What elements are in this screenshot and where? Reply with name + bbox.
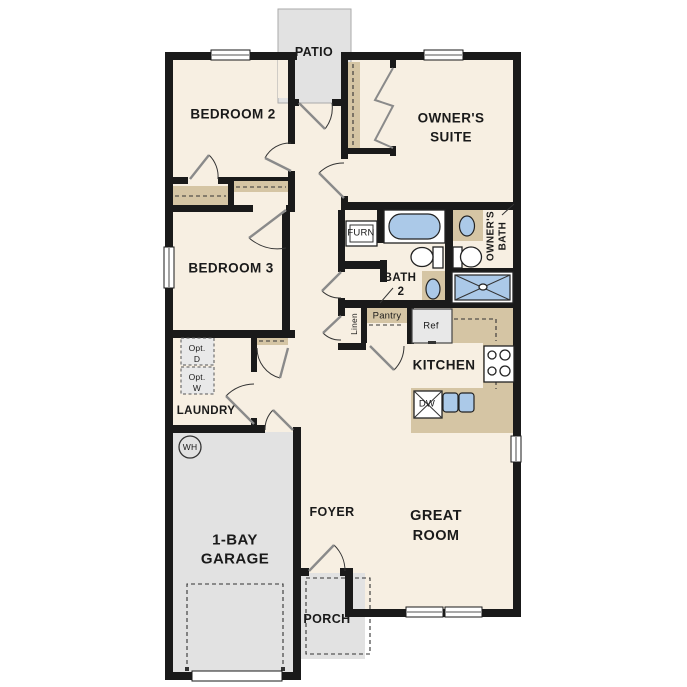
opt-washer-label-2: W	[193, 383, 201, 393]
great-room-label-2: ROOM	[413, 528, 460, 544]
garage-label-1: 1-BAY	[212, 532, 258, 549]
dishwasher-label: DW	[419, 399, 435, 410]
kitchen-counter-top	[450, 308, 513, 343]
sink	[460, 216, 475, 236]
opt-dryer-label-2: D	[194, 354, 200, 364]
toilet-tank	[433, 247, 443, 268]
patio-label: PATIO	[295, 45, 333, 59]
kitchen-label: KITCHEN	[413, 358, 476, 373]
stove	[484, 346, 514, 382]
linen-label: Linen	[349, 313, 359, 335]
floor-plan: PATIO BEDROOM 2 OWNER'S SUITE BEDROOM 3 …	[0, 0, 687, 687]
bathtub	[389, 214, 440, 239]
furnace-label: FURN	[347, 228, 374, 239]
owners-closet-shelf	[348, 62, 360, 148]
pantry-label: Pantry	[373, 311, 402, 322]
bath2-label-1: BATH	[384, 272, 417, 284]
owners-suite-label-2: SUITE	[430, 130, 472, 145]
owners-bath-label-1: OWNER'S	[486, 211, 497, 261]
garage-door-opening	[192, 671, 282, 681]
kitchen-sink-bowl	[443, 393, 458, 412]
great-room-label-1: GREAT	[410, 508, 462, 524]
water-heater-label: WH	[183, 442, 198, 452]
foyer-label: FOYER	[309, 505, 354, 519]
porch-label: PORCH	[303, 612, 350, 626]
burner	[500, 350, 510, 360]
burner	[500, 366, 510, 376]
garage-door-stop	[185, 667, 189, 671]
bedroom2-corner-patch	[278, 60, 288, 98]
shower-drain	[479, 284, 487, 290]
toilet-bowl	[411, 248, 433, 267]
refrigerator-handle	[428, 341, 436, 344]
toilet-bowl	[461, 247, 482, 267]
sink	[426, 279, 440, 299]
burner	[488, 367, 496, 375]
opt-dryer-label-1: Opt.	[189, 343, 206, 353]
garage-door-stop	[281, 667, 285, 671]
bedroom3-label: BEDROOM 3	[188, 261, 273, 276]
opt-washer-label-1: Opt.	[189, 372, 206, 382]
kitchen-sink-bowl	[459, 393, 474, 412]
refrigerator-label: Ref	[423, 321, 439, 332]
bedroom2-label: BEDROOM 2	[190, 107, 275, 122]
owners-bath-label-2: BATH	[498, 222, 509, 251]
bath2-label-2: 2	[398, 286, 405, 298]
laundry-label: LAUNDRY	[177, 405, 236, 417]
burner	[488, 351, 496, 359]
owners-suite-label-1: OWNER'S	[418, 111, 485, 126]
garage-label-2: GARAGE	[201, 551, 269, 568]
